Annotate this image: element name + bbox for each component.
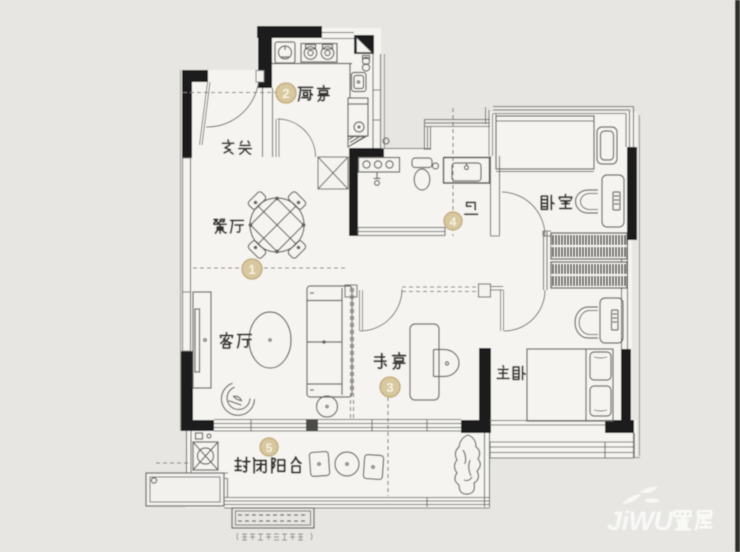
- svg-text:5: 5: [266, 441, 273, 455]
- svg-text:3: 3: [386, 380, 393, 395]
- svg-text:1: 1: [248, 262, 255, 277]
- svg-text:2: 2: [282, 86, 289, 101]
- svg-text:JiWU: JiWU: [607, 506, 675, 536]
- svg-text:4: 4: [450, 215, 457, 229]
